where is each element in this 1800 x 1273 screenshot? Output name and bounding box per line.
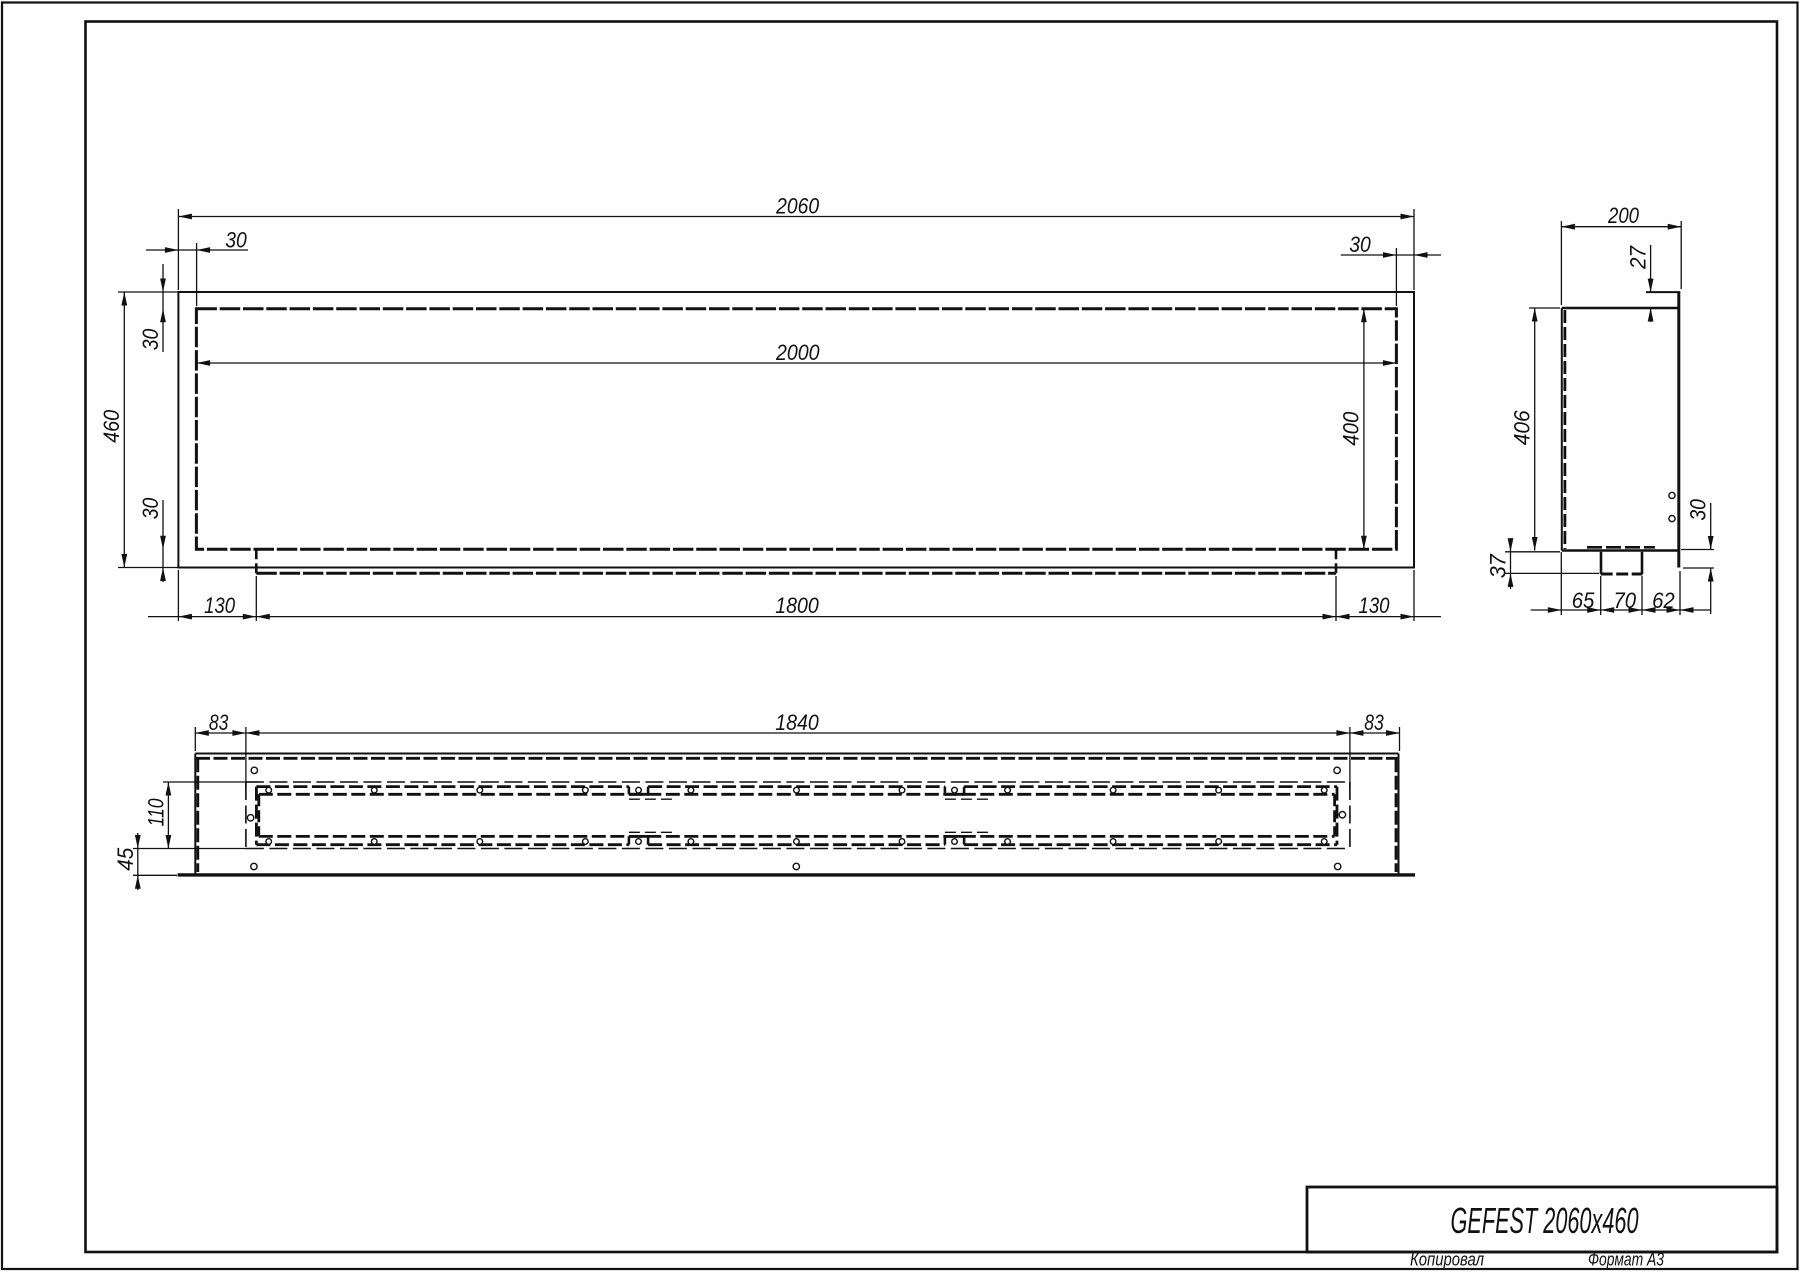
svg-text:130: 130: [204, 593, 236, 618]
svg-text:65: 65: [1572, 588, 1595, 613]
svg-text:30: 30: [138, 328, 163, 350]
svg-text:200: 200: [1607, 203, 1639, 228]
svg-text:70: 70: [1614, 588, 1637, 613]
svg-text:62: 62: [1652, 588, 1675, 613]
svg-text:Копировал: Копировал: [1410, 1250, 1484, 1270]
svg-text:30: 30: [1686, 498, 1711, 520]
svg-text:1840: 1840: [775, 710, 819, 735]
svg-text:2060: 2060: [775, 193, 820, 218]
svg-text:GEFEST 2060x460: GEFEST 2060x460: [1451, 1200, 1639, 1241]
svg-text:460: 460: [99, 409, 124, 443]
svg-text:1800: 1800: [775, 593, 819, 618]
svg-text:2000: 2000: [775, 340, 820, 365]
svg-text:30: 30: [138, 497, 163, 519]
svg-text:110: 110: [143, 798, 168, 827]
svg-text:Формат А3: Формат А3: [1588, 1250, 1664, 1270]
svg-text:406: 406: [1510, 410, 1535, 446]
svg-text:83: 83: [209, 710, 229, 735]
svg-text:130: 130: [1359, 593, 1391, 618]
svg-text:37: 37: [1486, 554, 1511, 579]
svg-text:27: 27: [1626, 245, 1651, 270]
svg-text:30: 30: [1349, 232, 1371, 257]
svg-text:83: 83: [1364, 710, 1384, 735]
svg-text:400: 400: [1338, 411, 1363, 446]
svg-text:45: 45: [113, 847, 138, 871]
svg-text:30: 30: [225, 228, 247, 253]
